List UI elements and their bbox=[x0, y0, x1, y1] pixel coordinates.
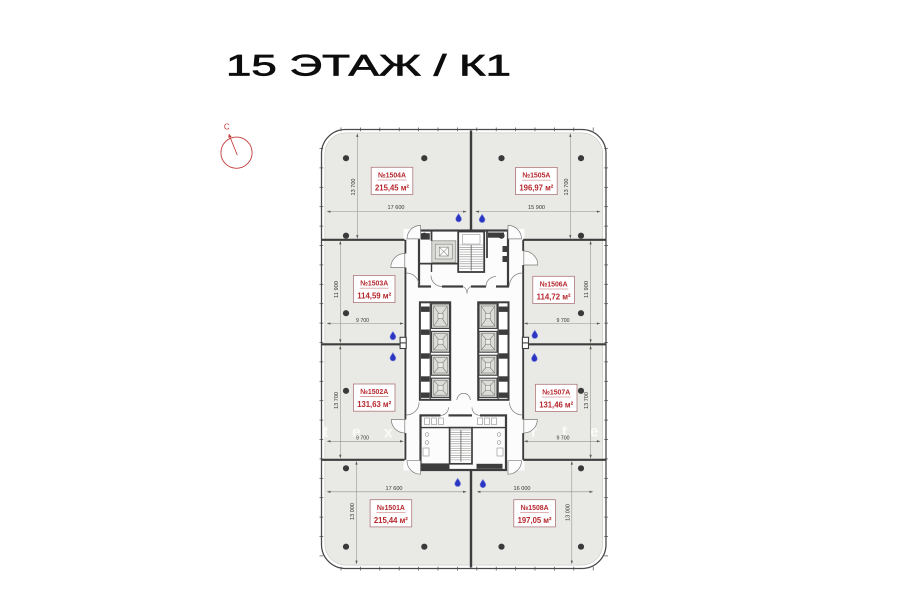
svg-text:11 900: 11 900 bbox=[334, 281, 340, 298]
svg-text:17 600: 17 600 bbox=[388, 205, 405, 211]
svg-text:t: t bbox=[323, 424, 328, 441]
svg-text:9 700: 9 700 bbox=[557, 436, 570, 442]
svg-text:13 700: 13 700 bbox=[351, 179, 357, 196]
svg-text:13 700: 13 700 bbox=[584, 392, 590, 409]
svg-text:196,97 м²: 196,97 м² bbox=[519, 183, 553, 193]
svg-text:17 600: 17 600 bbox=[386, 486, 403, 492]
svg-text:№1502А: №1502А bbox=[360, 387, 389, 396]
svg-text:16 000: 16 000 bbox=[514, 486, 531, 492]
svg-text:№1501А: №1501А bbox=[377, 503, 406, 512]
svg-text:13 700: 13 700 bbox=[334, 392, 340, 409]
svg-text:№1503А: №1503А bbox=[360, 279, 389, 288]
svg-text:114,59 м²: 114,59 м² bbox=[357, 291, 391, 301]
svg-text:№1504А: №1504А bbox=[378, 171, 407, 180]
svg-text:x: x bbox=[384, 425, 393, 442]
svg-text:131,63 м²: 131,63 м² bbox=[357, 399, 391, 409]
svg-text:114,72 м²: 114,72 м² bbox=[537, 292, 571, 302]
svg-text:13 000: 13 000 bbox=[565, 504, 571, 521]
svg-text:15 ЭТАЖ / К1: 15 ЭТАЖ / К1 bbox=[226, 49, 511, 82]
svg-text:197,05 м²: 197,05 м² bbox=[518, 515, 552, 525]
svg-text:№1508А: №1508А bbox=[521, 503, 550, 512]
svg-text:9 700: 9 700 bbox=[356, 318, 369, 324]
svg-text:e: e bbox=[590, 424, 599, 441]
svg-text:№1505А: №1505А bbox=[522, 171, 551, 180]
svg-text:15 900: 15 900 bbox=[528, 205, 545, 211]
svg-text:9 700: 9 700 bbox=[557, 318, 570, 324]
svg-text:215,44 м²: 215,44 м² bbox=[374, 515, 408, 525]
svg-text:13 000: 13 000 bbox=[350, 503, 356, 520]
svg-text:13 700: 13 700 bbox=[564, 179, 570, 196]
svg-text:215,45 м²: 215,45 м² bbox=[375, 183, 409, 193]
svg-text:9 700: 9 700 bbox=[356, 436, 369, 442]
svg-text:№1507А: №1507А bbox=[542, 388, 571, 397]
svg-text:C: C bbox=[224, 123, 230, 132]
svg-text:131,46 м²: 131,46 м² bbox=[539, 400, 573, 410]
svg-text:№1506А: №1506А bbox=[540, 280, 569, 289]
svg-text:11 900: 11 900 bbox=[584, 281, 590, 298]
